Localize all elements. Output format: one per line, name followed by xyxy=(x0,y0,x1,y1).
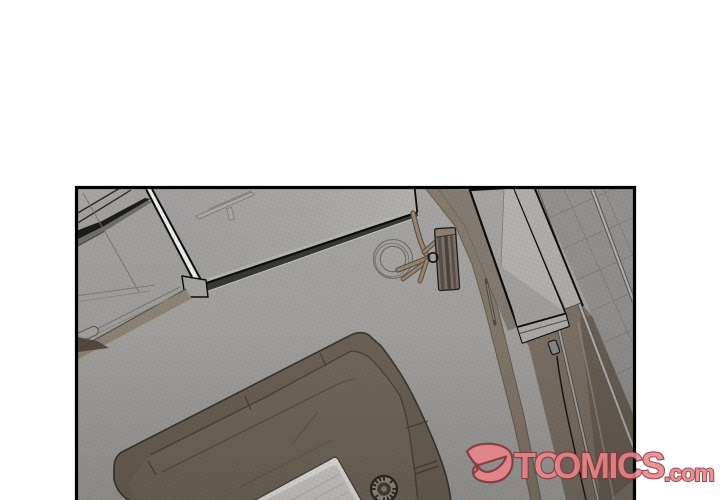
svg-text:.com: .com xyxy=(664,460,714,486)
svg-text:TOOMICS: TOOMICS xyxy=(514,445,664,486)
